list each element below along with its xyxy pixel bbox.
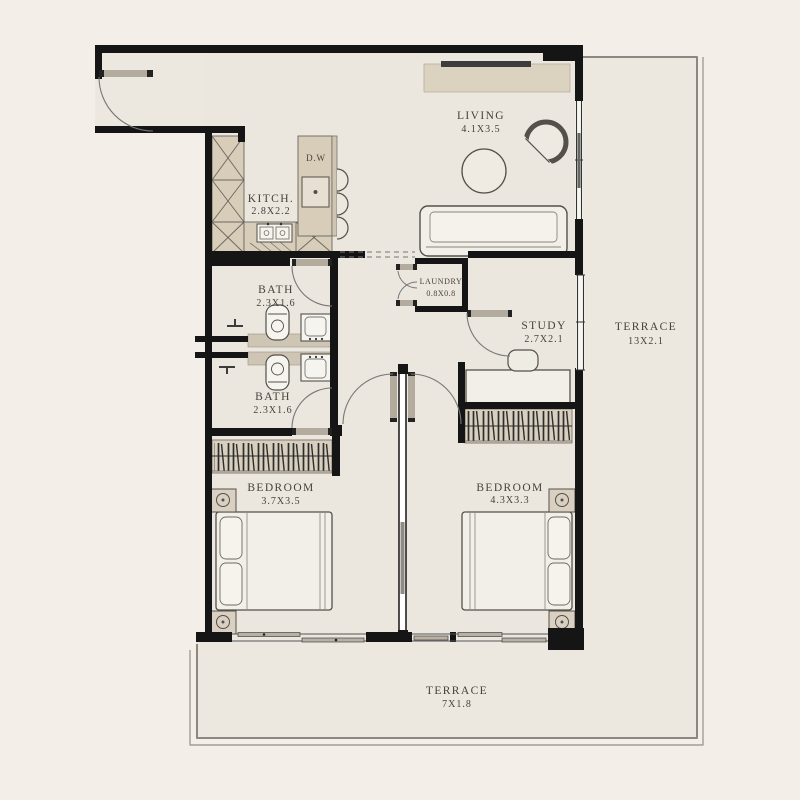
wardrobe-bedroom-right <box>465 409 572 443</box>
toilet-lower-icon <box>266 355 289 390</box>
room-label-living: LIVING <box>457 110 505 122</box>
dishwasher-label: D.W <box>306 153 326 163</box>
room-dims-kitchen: 2.8X2.2 <box>251 206 290 217</box>
tv-console <box>424 61 570 92</box>
room-label-bath-upper: BATH <box>258 284 294 296</box>
toilet-upper-icon <box>266 305 289 340</box>
wardrobe-bedroom-left <box>212 440 332 473</box>
room-label-bedroom-left: BEDROOM <box>247 482 314 494</box>
floor-plan-drawing: LIVING 4.1X3.5 KITCH. 2.8X2.2 D.W BATH 2… <box>0 0 800 800</box>
room-dims-bedroom-left: 3.7X3.5 <box>261 496 300 507</box>
room-dims-laundry: 0.8X0.8 <box>426 289 455 298</box>
sink-lower-icon <box>301 354 331 381</box>
bed-right <box>462 512 572 610</box>
room-dims-terrace-right: 13X2.1 <box>628 336 664 347</box>
study-stool <box>508 350 538 371</box>
tv-icon <box>441 61 531 67</box>
room-label-terrace-right: TERRACE <box>615 321 677 333</box>
sofa <box>420 206 567 256</box>
sink-upper-icon <box>301 314 331 341</box>
room-label-bedroom-right: BEDROOM <box>476 482 543 494</box>
room-label-terrace-bottom: TERRACE <box>426 685 488 697</box>
room-label-study: STUDY <box>521 320 566 332</box>
bar-stools <box>337 169 348 239</box>
room-label-bath-lower: BATH <box>255 391 291 403</box>
room-dims-bath-lower: 2.3X1.6 <box>253 405 292 416</box>
floor-plan-page: LIVING 4.1X3.5 KITCH. 2.8X2.2 D.W BATH 2… <box>0 0 800 800</box>
kitchen-island <box>298 136 337 236</box>
central-partition-wall <box>399 374 406 630</box>
bed-left <box>216 512 332 610</box>
room-dims-terrace-bottom: 7X1.8 <box>442 699 472 710</box>
room-label-kitchen: KITCH. <box>248 193 294 205</box>
room-dims-bath-upper: 2.3X1.6 <box>256 298 295 309</box>
room-dims-living: 4.1X3.5 <box>461 124 500 135</box>
study-window <box>576 275 585 370</box>
coffee-table <box>462 149 506 193</box>
living-window <box>575 101 583 219</box>
room-label-laundry: LAUNDRY <box>420 277 463 286</box>
room-dims-study: 2.7X2.1 <box>524 334 563 345</box>
room-dims-bedroom-right: 4.3X3.3 <box>490 495 529 506</box>
kitchen-sink <box>257 223 292 242</box>
